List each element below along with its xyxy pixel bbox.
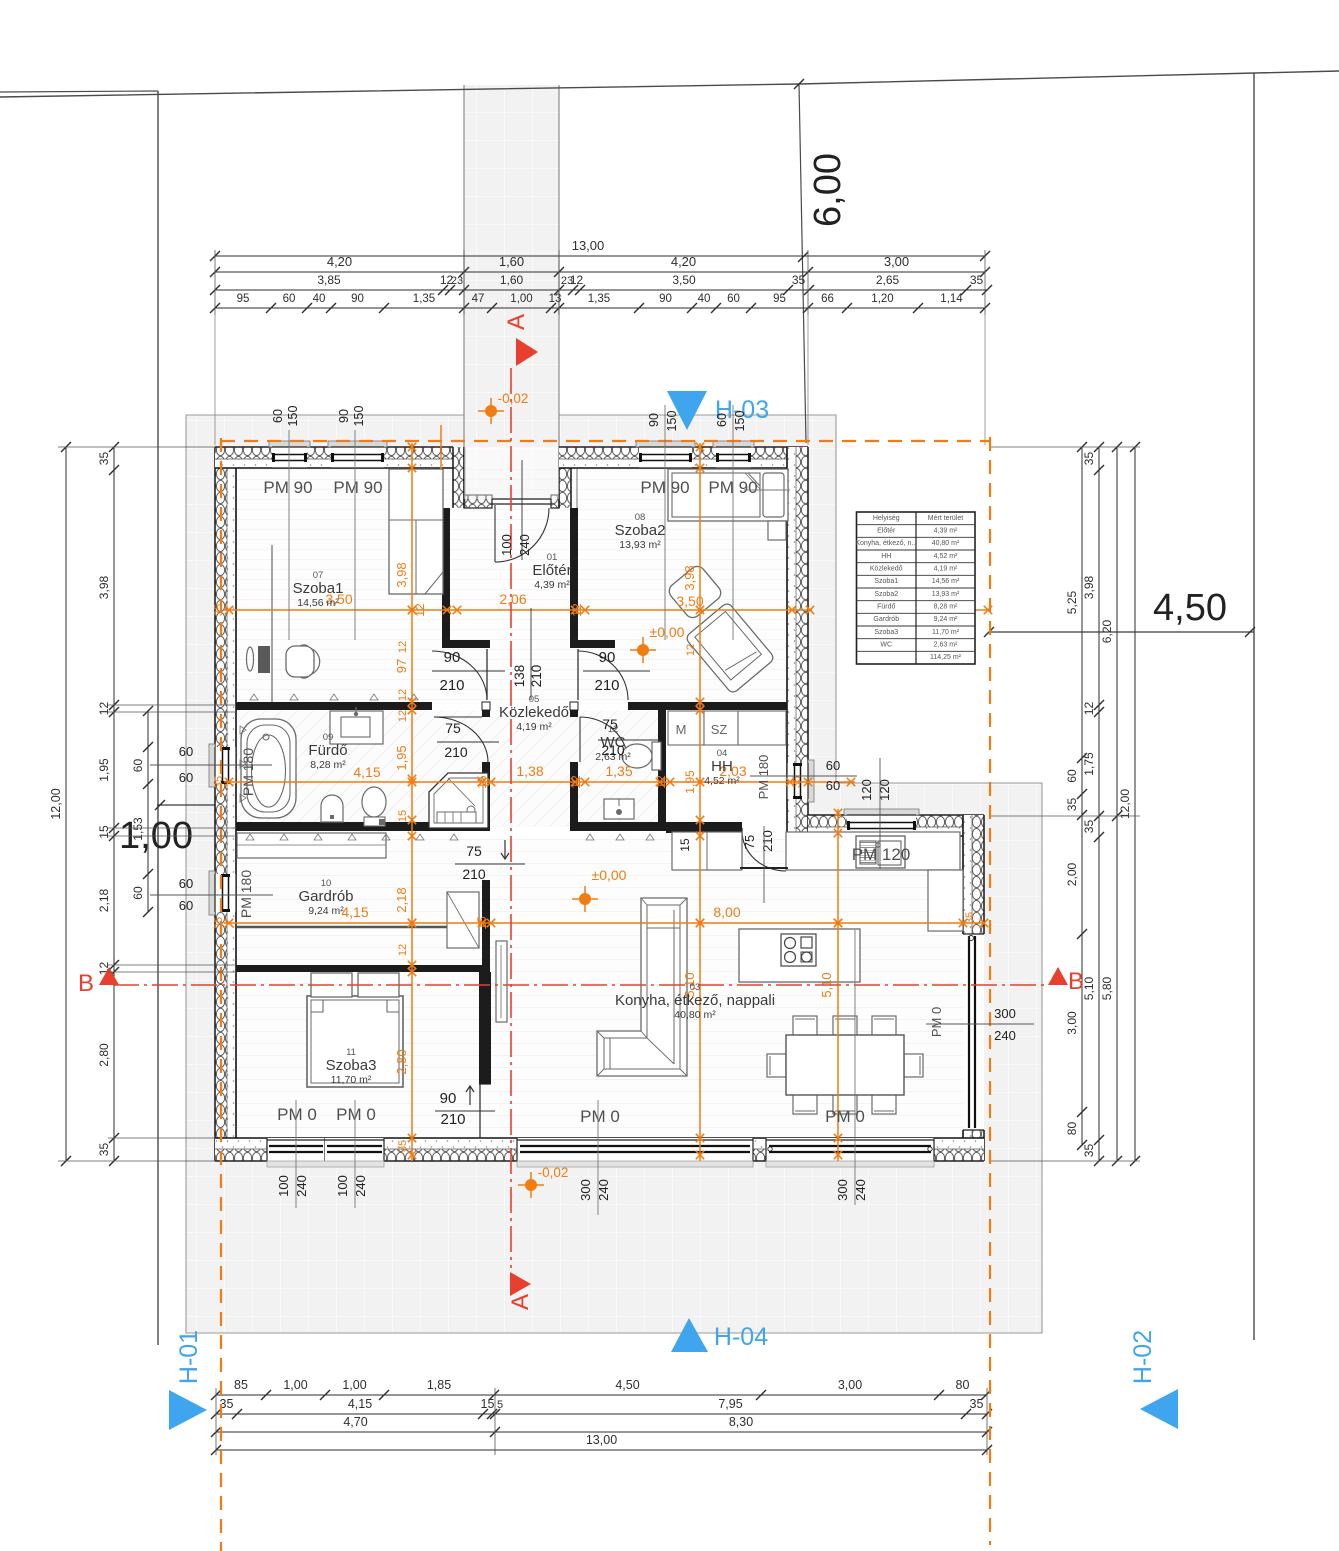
svg-text:13: 13 [549,293,562,305]
svg-text:90: 90 [444,649,461,666]
svg-text:1,60: 1,60 [499,254,524,269]
svg-text:114,25 m²: 114,25 m² [930,654,962,661]
svg-text:PM 180: PM 180 [756,755,771,800]
svg-text:120: 120 [859,779,874,801]
svg-text:35: 35 [970,273,984,287]
svg-text:3,00: 3,00 [884,254,909,269]
svg-text:210: 210 [439,677,464,694]
svg-text:40: 40 [313,293,326,305]
svg-text:210: 210 [594,677,619,694]
svg-text:2,80: 2,80 [97,1043,111,1067]
svg-text:13,93 m²: 13,93 m² [619,539,661,551]
svg-text:35: 35 [792,273,806,287]
svg-text:4,20: 4,20 [327,254,352,269]
svg-text:35: 35 [97,1143,111,1157]
svg-text:100: 100 [276,1175,291,1197]
svg-text:PM 0: PM 0 [580,1107,620,1126]
svg-text:2,80: 2,80 [394,1049,409,1074]
svg-text:3,50: 3,50 [672,273,696,287]
svg-text:Helyiség: Helyiség [873,515,900,522]
svg-text:4,39 m²: 4,39 m² [934,528,958,535]
svg-text:240: 240 [853,1179,868,1201]
svg-text:95: 95 [237,293,250,305]
svg-text:4,15: 4,15 [348,1397,372,1411]
svg-text:6,20: 6,20 [1100,619,1114,643]
svg-text:240: 240 [294,1175,309,1197]
svg-text:138: 138 [512,665,527,688]
svg-text:5,80: 5,80 [1100,976,1114,1000]
svg-text:PM 0: PM 0 [929,1007,944,1037]
svg-text:2,18: 2,18 [394,887,409,912]
svg-text:5,10: 5,10 [1082,976,1096,1000]
svg-text:Közlekedő: Közlekedő [870,566,903,573]
svg-text:13,00: 13,00 [572,238,605,253]
svg-text:7,95: 7,95 [718,1397,742,1411]
svg-text:B: B [1068,968,1084,995]
svg-text:60: 60 [179,744,193,759]
svg-text:80: 80 [956,1378,970,1392]
svg-text:Konyha, étkező, n...: Konyha, étkező, n... [855,540,917,547]
svg-text:15: 15 [481,1397,495,1411]
svg-text:12: 12 [397,944,409,956]
svg-text:35: 35 [97,452,111,466]
svg-text:60: 60 [826,758,840,773]
svg-text:4,52 m²: 4,52 m² [704,775,740,787]
svg-text:11,70 m²: 11,70 m² [932,629,960,636]
svg-text:15: 15 [475,775,489,789]
svg-text:1,35: 1,35 [605,763,632,779]
svg-text:35: 35 [213,917,225,929]
svg-text:60: 60 [715,413,729,427]
svg-text:60: 60 [727,293,740,305]
svg-text:240: 240 [994,1028,1016,1043]
svg-text:WC: WC [880,642,892,649]
svg-text:H-02: H-02 [1129,1330,1157,1384]
svg-text:210: 210 [440,1111,465,1128]
svg-text:85: 85 [234,1378,248,1392]
svg-text:2,06: 2,06 [499,591,526,607]
svg-text:47: 47 [472,293,485,305]
svg-text:60: 60 [179,876,193,891]
svg-text:M: M [676,722,687,737]
svg-text:8,30: 8,30 [729,1415,753,1429]
svg-text:1,85: 1,85 [427,1378,451,1392]
svg-text:100: 100 [335,1175,350,1197]
svg-text:15: 15 [678,838,692,852]
svg-text:Szoba1: Szoba1 [293,580,344,597]
svg-text:60: 60 [271,409,285,423]
svg-text:14,56 m²: 14,56 m² [932,578,960,585]
svg-text:PM 0: PM 0 [336,1105,376,1124]
svg-text:Szoba3: Szoba3 [874,629,898,636]
svg-text:60: 60 [826,778,840,793]
svg-text:12: 12 [397,641,409,653]
svg-text:35: 35 [397,1140,409,1152]
svg-text:90: 90 [337,409,351,423]
svg-text:300: 300 [578,1179,593,1201]
svg-text:Szoba3: Szoba3 [326,1057,377,1074]
svg-text:HH: HH [881,553,891,560]
svg-text:14,56 m²: 14,56 m² [297,597,339,609]
svg-text:13,00: 13,00 [586,1433,617,1447]
svg-text:4,50: 4,50 [615,1378,639,1392]
svg-text:12: 12 [1082,702,1096,716]
svg-text:8,00: 8,00 [713,904,740,920]
svg-text:150: 150 [733,411,747,432]
svg-text:3,00: 3,00 [1065,1011,1079,1035]
svg-text:1,95: 1,95 [683,770,697,794]
svg-text:60: 60 [283,293,296,305]
svg-text:60: 60 [179,898,193,913]
svg-text:12: 12 [570,603,584,617]
svg-text:PM 90: PM 90 [263,478,312,497]
svg-text:35: 35 [213,604,225,616]
svg-text:1,95: 1,95 [394,745,409,770]
svg-text:4,15: 4,15 [341,904,368,920]
svg-text:4,39 m²: 4,39 m² [534,579,570,591]
svg-text:Gardrób: Gardrób [298,888,353,905]
svg-text:12: 12 [685,644,697,656]
svg-text:2,18: 2,18 [97,888,111,912]
svg-text:23: 23 [561,275,573,287]
svg-text:13,93 m²: 13,93 m² [932,591,960,598]
svg-text:60: 60 [131,759,145,773]
svg-text:H-04: H-04 [714,1323,768,1351]
svg-text:15: 15 [475,916,489,930]
svg-text:100: 100 [499,534,514,556]
svg-text:3,98: 3,98 [682,565,697,590]
svg-text:90: 90 [440,1090,457,1107]
svg-text:9,24 m²: 9,24 m² [934,616,958,623]
svg-text:A: A [507,1294,534,1310]
svg-text:3,98: 3,98 [394,562,409,587]
svg-text:1,75: 1,75 [1082,752,1096,776]
svg-text:97: 97 [394,659,409,673]
svg-text:35: 35 [791,776,803,788]
svg-text:12: 12 [654,775,668,789]
svg-text:240: 240 [596,1179,611,1201]
svg-text:35: 35 [1082,1144,1096,1158]
svg-text:90: 90 [599,649,616,666]
svg-text:210: 210 [760,830,775,852]
svg-text:300: 300 [835,1179,850,1201]
svg-text:12: 12 [397,689,409,701]
svg-text:12: 12 [97,702,111,716]
svg-text:PM 0: PM 0 [277,1105,317,1124]
svg-text:Előtér: Előtér [532,562,571,579]
svg-text:240: 240 [353,1175,368,1197]
svg-text:Közlekedő: Közlekedő [499,704,569,721]
svg-text:75: 75 [742,835,757,849]
svg-text:35: 35 [1082,820,1096,834]
svg-text:5: 5 [497,1399,503,1411]
svg-text:4,19 m²: 4,19 m² [934,566,958,573]
svg-text:90: 90 [647,413,661,427]
svg-text:12,00: 12,00 [1118,789,1132,819]
svg-text:8,28 m²: 8,28 m² [934,604,958,611]
svg-text:300: 300 [994,1006,1016,1021]
svg-text:90: 90 [659,293,672,305]
svg-text:2,00: 2,00 [1065,862,1079,886]
svg-text:75: 75 [445,720,461,736]
svg-text:Konyha, étkező, nappali: Konyha, étkező, nappali [615,992,775,1009]
svg-text:5,25: 5,25 [1065,590,1079,614]
svg-text:PM 90: PM 90 [333,478,382,497]
svg-text:3,00: 3,00 [838,1378,862,1392]
svg-text:12,00: 12,00 [49,788,63,819]
svg-text:60: 60 [1065,769,1079,783]
svg-text:12: 12 [397,710,409,722]
svg-text:SZ: SZ [711,722,728,737]
svg-text:150: 150 [665,411,679,432]
svg-text:210: 210 [444,744,468,760]
svg-text:40: 40 [698,293,711,305]
svg-text:Szoba2: Szoba2 [874,591,898,598]
svg-text:240: 240 [517,534,532,556]
svg-text:Fürdő: Fürdő [308,742,347,759]
svg-text:35: 35 [1065,798,1079,812]
svg-text:PM 180: PM 180 [240,748,256,796]
svg-text:H-01: H-01 [175,1330,203,1384]
svg-text:HH: HH [711,758,733,775]
svg-text:66: 66 [821,293,834,305]
svg-text:1,20: 1,20 [871,293,893,305]
svg-text:2,63 m²: 2,63 m² [934,642,958,649]
svg-text:1,95: 1,95 [97,758,111,782]
svg-text:1,38: 1,38 [516,763,543,779]
svg-text:Előtér: Előtér [877,528,896,535]
svg-text:15: 15 [397,810,409,822]
svg-text:3,98: 3,98 [97,575,111,599]
svg-text:210: 210 [462,866,486,882]
svg-text:80: 80 [1065,1122,1079,1136]
svg-text:60: 60 [131,886,145,900]
svg-text:90: 90 [351,293,364,305]
svg-text:12: 12 [569,775,583,789]
svg-text:4,20: 4,20 [671,254,696,269]
svg-text:Fürdő: Fürdő [877,604,895,611]
svg-text:1,35: 1,35 [413,293,435,305]
svg-text:3,98: 3,98 [1082,575,1096,599]
svg-text:95: 95 [773,293,786,305]
svg-text:9,24 m²: 9,24 m² [308,905,344,917]
svg-text:4,70: 4,70 [343,1415,367,1429]
svg-text:23: 23 [451,275,463,287]
svg-text:B: B [78,970,94,997]
svg-text:15: 15 [97,825,111,839]
svg-text:Szoba2: Szoba2 [615,522,666,539]
svg-text:±0,00: ±0,00 [650,624,685,640]
svg-text:A: A [503,314,530,330]
svg-text:-0,02: -0,02 [538,1165,569,1180]
svg-text:1,60: 1,60 [500,273,524,287]
svg-text:35: 35 [213,776,225,788]
svg-text:3,50: 3,50 [676,593,703,609]
svg-text:4,19 m²: 4,19 m² [516,721,552,733]
svg-text:60: 60 [179,770,193,785]
svg-text:120: 120 [877,779,892,801]
svg-text:40,80 m²: 40,80 m² [932,540,960,547]
svg-text:3,85: 3,85 [317,273,341,287]
svg-text:35: 35 [970,1397,984,1411]
svg-text:4,15: 4,15 [353,764,380,780]
svg-text:8,28 m²: 8,28 m² [310,759,346,771]
svg-text:40,80 m²: 40,80 m² [674,1009,716,1021]
svg-text:Mért terület: Mért terület [928,515,963,522]
svg-text:1,00: 1,00 [510,293,532,305]
svg-text:4,52 m²: 4,52 m² [934,553,958,560]
svg-text:210: 210 [601,742,625,758]
svg-text:6,00: 6,00 [807,153,849,227]
svg-text:PM 0: PM 0 [825,1107,865,1126]
svg-text:±0,00: ±0,00 [592,867,627,883]
svg-text:75: 75 [466,843,482,859]
svg-text:PM 120: PM 120 [852,845,911,864]
svg-text:1,00: 1,00 [342,1378,366,1392]
svg-text:35: 35 [964,912,976,924]
svg-text:Szoba1: Szoba1 [874,578,898,585]
svg-text:Gardrób: Gardrób [873,616,899,623]
svg-text:-0,02: -0,02 [498,391,529,406]
svg-text:1,14: 1,14 [940,293,963,305]
svg-text:PM 180: PM 180 [238,870,254,918]
svg-text:1,00: 1,00 [283,1378,307,1392]
svg-text:2,65: 2,65 [876,273,900,287]
svg-text:150: 150 [352,406,366,427]
svg-text:11,70 m²: 11,70 m² [331,1074,372,1086]
svg-text:1,35: 1,35 [588,293,610,305]
svg-text:12: 12 [413,603,427,617]
svg-text:35: 35 [1082,452,1096,466]
svg-text:75: 75 [602,716,618,732]
svg-text:4,50: 4,50 [1153,587,1227,629]
svg-text:150: 150 [286,406,300,427]
